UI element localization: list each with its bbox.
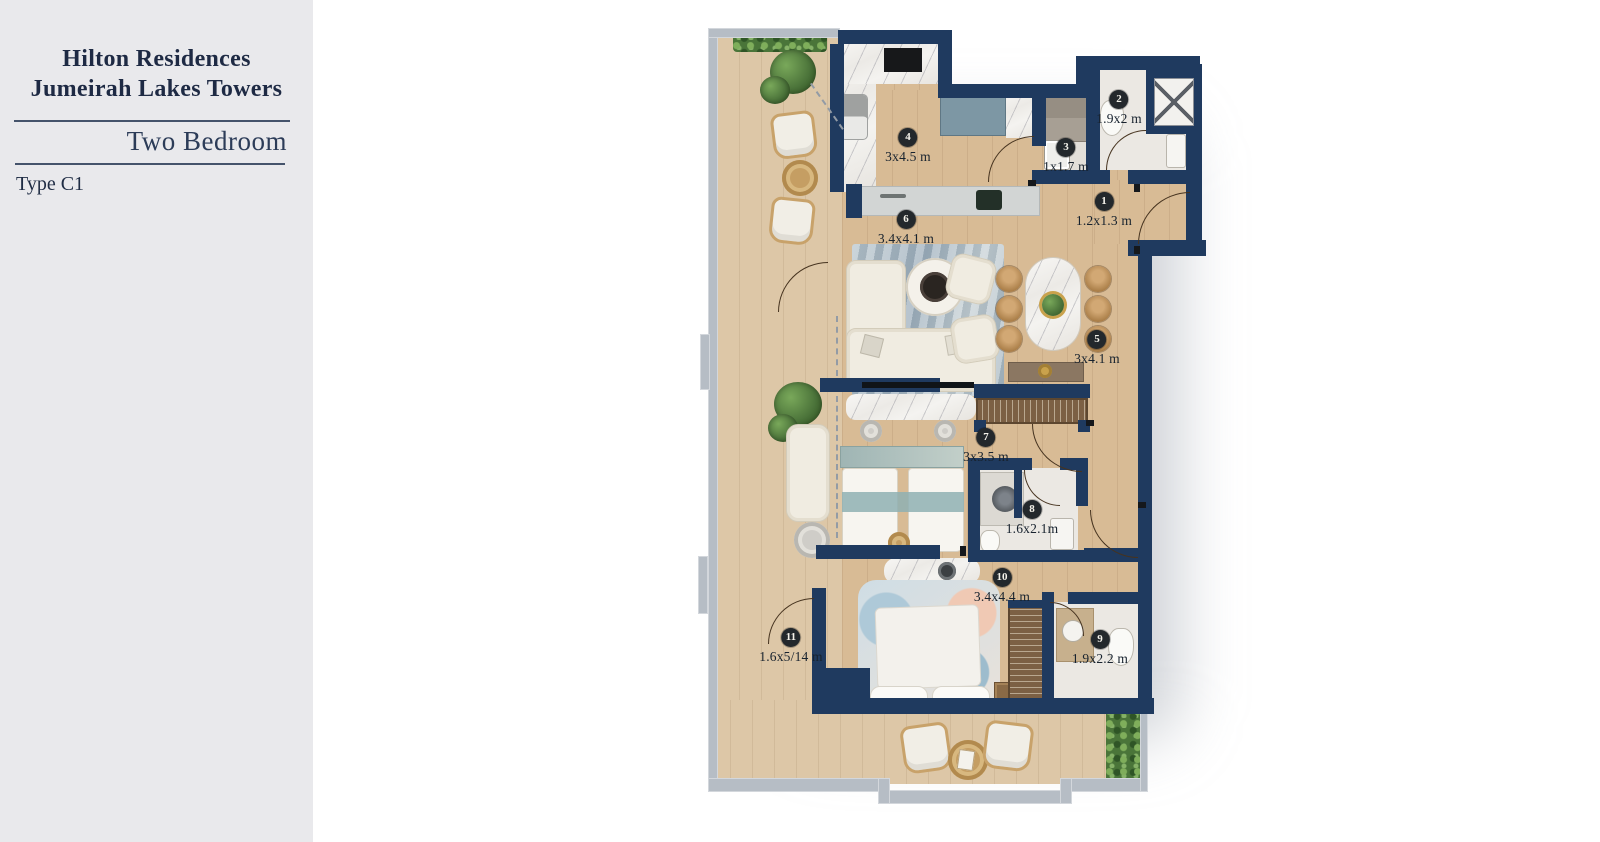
room-badge: 11: [781, 628, 800, 647]
outdoor-table: [782, 160, 818, 196]
room-dimension: 1.6x2.1m: [1006, 521, 1059, 537]
balcony-wall-step: [878, 778, 890, 804]
door-jamb: [960, 546, 966, 556]
page: Hilton Residences Jumeirah Lakes Towers …: [0, 0, 1600, 842]
room-label-1: 1 1.2x1.3 m: [1076, 192, 1132, 229]
door-jamb: [1086, 420, 1094, 426]
stool: [860, 420, 882, 442]
wall-segment: [968, 550, 1088, 562]
door-jamb: [1028, 180, 1036, 186]
room-badge: 8: [1022, 500, 1041, 519]
room-badge: 1: [1095, 192, 1114, 211]
project-title-line2: Jumeirah Lakes Towers: [10, 74, 303, 104]
balcony-outer-wall-bottom: [708, 778, 890, 792]
dining-chair: [996, 326, 1022, 352]
room-label-7: 7 3x3.5 m: [963, 428, 1009, 465]
kitchen-cooktop: [884, 48, 922, 72]
room-badge: 4: [899, 128, 918, 147]
outdoor-chair: [769, 109, 818, 160]
planter-hedge-bottom: [1106, 708, 1142, 782]
dining-chair: [996, 296, 1022, 322]
sliding-door-line: [836, 316, 838, 376]
kitchen-cabinet-gray: [1040, 94, 1090, 142]
balcony-bench-sofa: [786, 424, 830, 522]
wall-segment: [830, 44, 844, 192]
balcony-wall-step: [1060, 778, 1072, 804]
wardrobe-top-wall: [974, 384, 1090, 398]
room-label-10: 10 3.4x4.4 m: [974, 568, 1030, 605]
dining-chair: [1085, 266, 1111, 292]
balcony-wall-step: [698, 556, 708, 614]
master-bed-blanket: [875, 604, 982, 690]
bed7-throw: [842, 492, 964, 512]
outdoor-chair: [981, 719, 1034, 772]
outdoor-table-book: [957, 749, 976, 771]
outdoor-chair: [899, 721, 953, 775]
bathroom2-vanity: [1166, 134, 1186, 168]
island-hob: [976, 190, 1002, 210]
island-end-wall: [846, 184, 862, 218]
balcony-outer-wall-top: [708, 28, 840, 38]
unit-type-subtitle: Two Bedroom: [0, 126, 287, 157]
room-dimension: 3.4x4.1 m: [878, 231, 934, 247]
room-label-3: 3 1x1.7 m: [1043, 138, 1089, 175]
tv-screen: [862, 382, 974, 388]
room-dimension: 1.9x2.2 m: [1072, 651, 1128, 667]
wall-segment: [812, 698, 1154, 714]
room-badge: 10: [993, 568, 1012, 587]
room-badge: 2: [1110, 90, 1129, 109]
room-dimension: 3x4.1 m: [1074, 351, 1120, 367]
room-badge: 9: [1091, 630, 1110, 649]
sliding-door-line: [836, 396, 838, 538]
wall-segment: [938, 30, 952, 92]
island-faucet: [880, 194, 906, 198]
door-jamb: [1134, 246, 1140, 254]
room-label-9: 9 1.9x2.2 m: [1072, 630, 1128, 667]
wall-segment: [1138, 252, 1152, 712]
wardrobe-rack: [976, 398, 1088, 424]
wall-segment: [1068, 592, 1142, 604]
dresser-desk: [846, 394, 976, 420]
balcony-outer-wall-bottom: [1060, 778, 1144, 792]
room-dimension: 3.4x4.4 m: [974, 589, 1030, 605]
title-panel: Hilton Residences Jumeirah Lakes Towers …: [0, 0, 313, 842]
dining-chair: [996, 266, 1022, 292]
balcony-wall-step: [700, 334, 710, 390]
room-badge: 5: [1088, 330, 1107, 349]
wall-segment: [938, 84, 1088, 98]
door-jamb: [1134, 184, 1140, 192]
kitchen-sink: [840, 94, 868, 140]
bench-bowl: [938, 562, 956, 580]
kitchen-counter-blue: [940, 92, 1006, 136]
wall-segment: [1032, 84, 1046, 146]
room-label-5: 5 3x4.1 m: [1074, 330, 1120, 367]
room-badge: 7: [977, 428, 996, 447]
wardrobe-cap: [1008, 702, 1050, 710]
console-lamp: [1038, 364, 1052, 378]
wall-segment: [838, 30, 952, 44]
room-label-6: 6 3.4x4.1 m: [878, 210, 934, 247]
room-badge: 6: [897, 210, 916, 229]
bed7-headboard: [840, 446, 964, 468]
divider-rule-bottom: [15, 163, 285, 165]
dining-chair: [1085, 296, 1111, 322]
plan-type-label: Type C1: [16, 173, 313, 196]
wall-segment: [968, 458, 980, 562]
plant-pot: [760, 76, 790, 104]
room-label-11: 11 1.6x5/14 m: [759, 628, 823, 665]
room-label-2: 2 1.9x2 m: [1096, 90, 1142, 127]
armchair: [949, 313, 1002, 366]
room-dimension: 1x1.7 m: [1043, 159, 1089, 175]
outdoor-chair: [768, 196, 817, 246]
stool: [934, 420, 956, 442]
dining-centerpiece-plant: [1042, 294, 1064, 316]
room-dimension: 1.6x5/14 m: [759, 649, 823, 665]
project-title-line1: Hilton Residences: [10, 44, 303, 74]
project-title: Hilton Residences Jumeirah Lakes Towers: [10, 44, 303, 104]
duct-shaft-icon: [1154, 78, 1194, 126]
room-dimension: 1.9x2 m: [1096, 111, 1142, 127]
wall-segment: [816, 545, 940, 559]
balcony-outer-wall: [708, 28, 718, 784]
room-badge: 3: [1057, 138, 1076, 157]
room-dimension: 1.2x1.3 m: [1076, 213, 1132, 229]
room-dimension: 3x3.5 m: [963, 449, 1009, 465]
wall-segment: [1090, 56, 1200, 70]
room-label-8: 8 1.6x2.1m: [1006, 500, 1059, 537]
divider-rule-top: [14, 120, 290, 122]
balcony-outer-wall-bottom: [878, 790, 1070, 804]
room-label-4: 4 3x4.5 m: [885, 128, 931, 165]
room-dimension: 3x4.5 m: [885, 149, 931, 165]
door-jamb: [1138, 502, 1146, 508]
wall-segment: [1128, 170, 1188, 184]
